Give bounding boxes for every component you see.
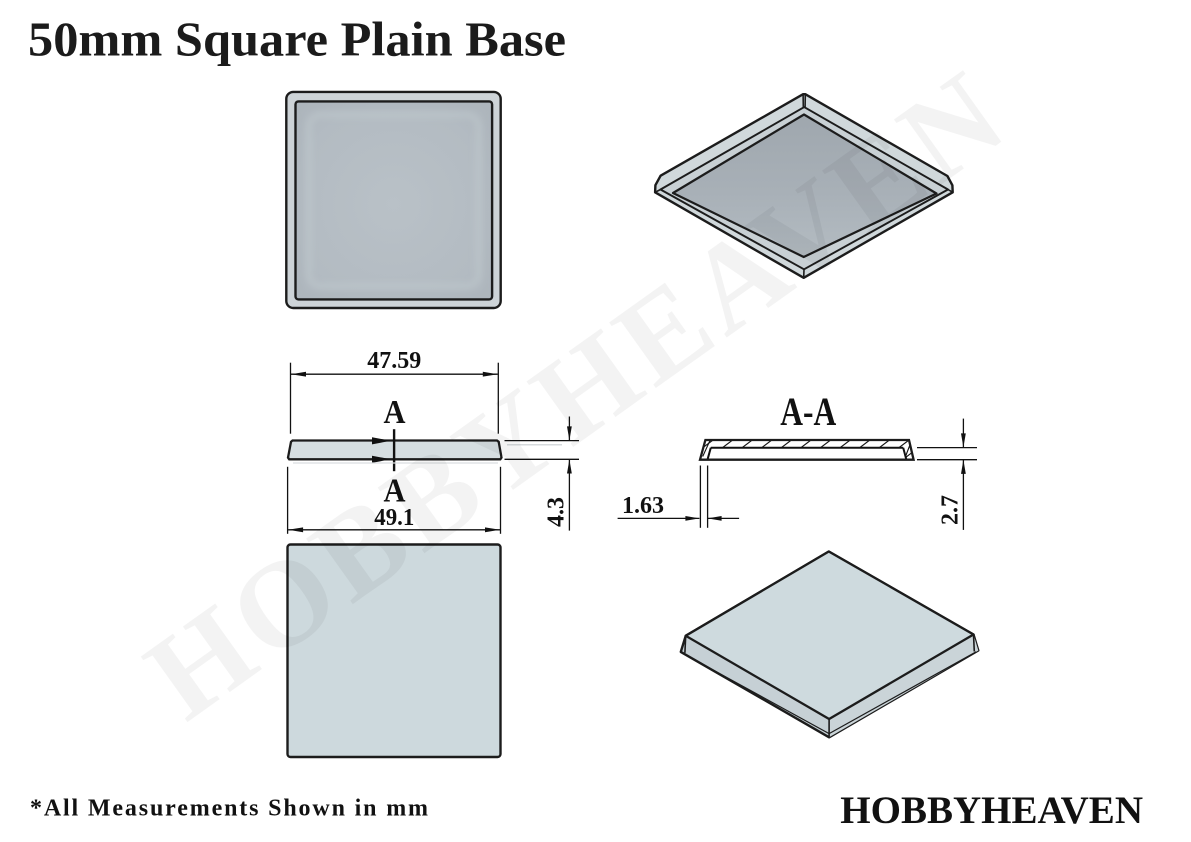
svg-text:50mm Square Plain Base: 50mm Square Plain Base: [28, 12, 566, 67]
svg-text:A-A: A-A: [780, 389, 836, 434]
svg-text:*All Measurements Shown in mm: *All Measurements Shown in mm: [30, 796, 430, 822]
svg-text:47.59: 47.59: [367, 348, 421, 374]
svg-text:A: A: [384, 394, 406, 431]
svg-text:2.7: 2.7: [938, 495, 964, 525]
svg-text:1.63: 1.63: [622, 493, 664, 519]
svg-text:A: A: [384, 473, 406, 510]
svg-text:4.3: 4.3: [544, 497, 570, 527]
svg-text:HOBBYHEAVEN: HOBBYHEAVEN: [840, 789, 1143, 832]
svg-text:49.1: 49.1: [374, 505, 414, 531]
